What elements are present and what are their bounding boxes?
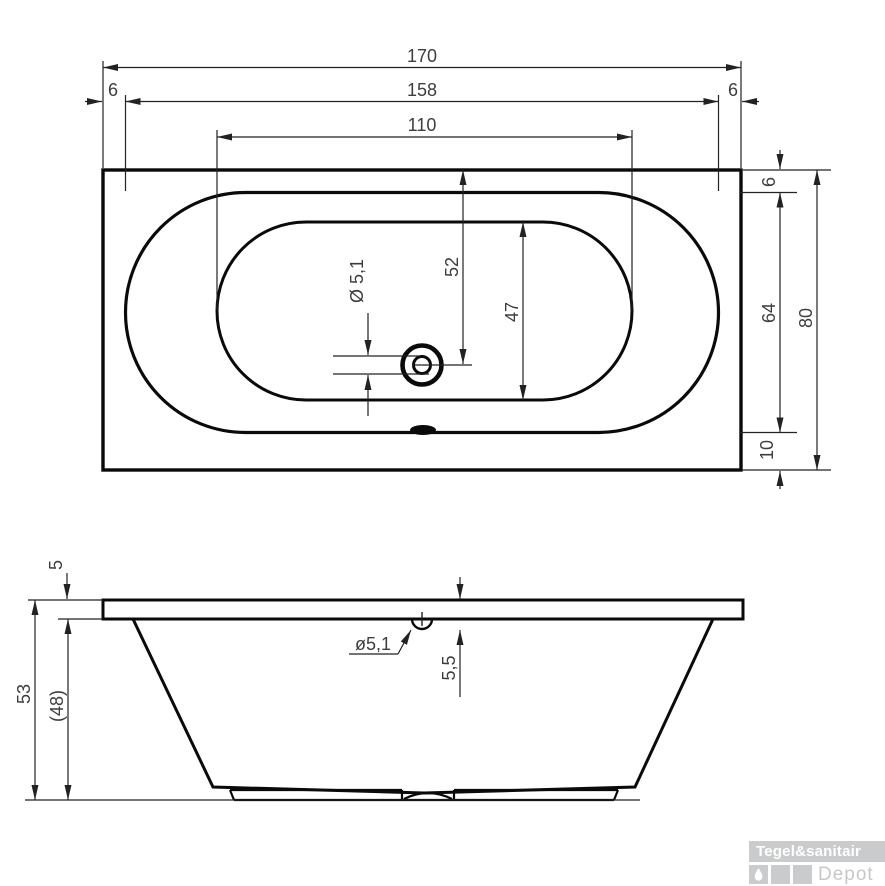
brand-bar: Tegel&sanitair: [749, 841, 885, 862]
dim-overflow-depth: 5,5: [439, 655, 459, 680]
technical-drawing: 170 158 6 6 110 Ø 5,1 52 47 6 64 10 80: [0, 0, 885, 885]
overflow-mark: [410, 425, 436, 435]
dim-overflow-diameter: ø5,1: [355, 634, 391, 654]
tub-deck-outline: [103, 170, 741, 470]
front-view-dimension-lines: [35, 573, 460, 800]
dim-rim-edge-top: 6: [759, 177, 779, 187]
tub-rim-outline: [126, 193, 719, 433]
tub-body-profile: [133, 619, 713, 793]
dim-rim-edge-bottom: 10: [757, 440, 777, 460]
drop-icon: [749, 865, 768, 884]
drawing-canvas: 170 158 6 6 110 Ø 5,1 52 47 6 64 10 80: [0, 0, 885, 885]
brand-watermark: Tegel&sanitair Depot: [749, 841, 885, 884]
brand-name: Tegel&sanitair: [756, 843, 861, 860]
top-view-dimension-lines: [85, 68, 817, 490]
dim-rim-length: 158: [407, 80, 437, 100]
brand-subtitle: Depot: [818, 864, 874, 886]
dim-floor-length: 110: [408, 115, 437, 135]
dim-rim-edge-left: 6: [108, 80, 118, 100]
rim-profile: [103, 600, 743, 619]
logo-square: [793, 865, 812, 884]
dim-total-height: 53: [14, 684, 34, 704]
brand-row: Depot: [749, 865, 885, 884]
dim-drain-offset: 52: [442, 257, 462, 277]
dim-inner-height: (48): [47, 690, 67, 722]
top-view-extension-lines: [103, 61, 831, 470]
dim-rim-edge-right: 6: [728, 80, 738, 100]
logo-square: [771, 865, 790, 884]
top-view: 170 158 6 6 110 Ø 5,1 52 47 6 64 10 80: [85, 46, 831, 489]
dim-rim-thickness: 5: [46, 560, 66, 570]
front-view: 5 53 (48) ø5,1 5,5: [14, 560, 743, 800]
dim-floor-width: 47: [502, 302, 522, 322]
dim-rim-width: 64: [759, 303, 779, 323]
dim-drain-diameter-top: Ø 5,1: [347, 259, 367, 303]
dim-total-width: 80: [796, 308, 816, 328]
dim-total-length: 170: [407, 46, 437, 66]
front-view-extension-lines: [25, 600, 640, 800]
